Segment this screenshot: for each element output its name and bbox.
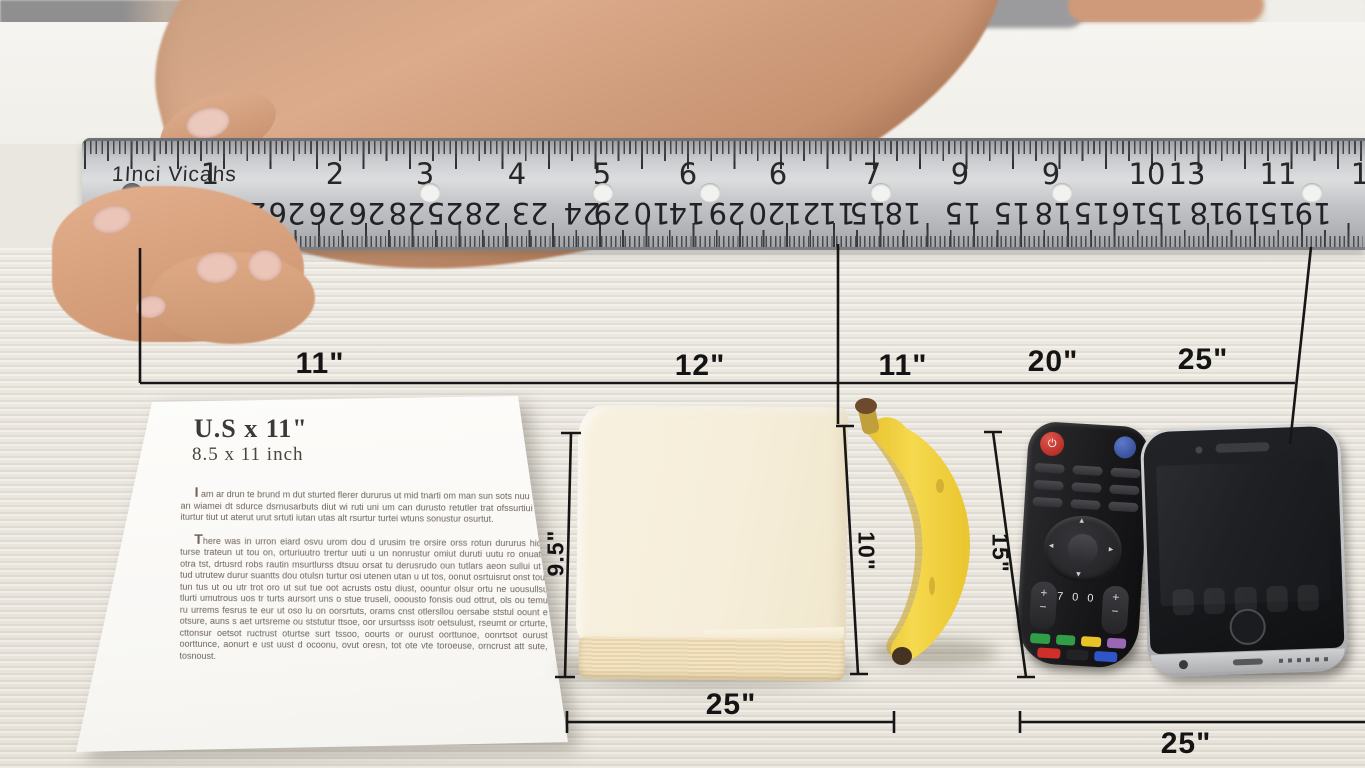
ruler-hole [593, 183, 614, 202]
phone-headphone-jack [1179, 660, 1188, 669]
ruler-hole [1052, 183, 1073, 202]
dpad-ok-button [1067, 533, 1099, 565]
remote-colored-button [1037, 647, 1060, 658]
remote-dpad: ▴ ▾ ◂ ▸ [1042, 514, 1124, 585]
finger-nail [248, 250, 282, 281]
banana-tip [892, 647, 912, 665]
dpad-left-icon: ◂ [1049, 540, 1054, 551]
remote-source-button [1113, 436, 1136, 459]
remote-colored-button [1094, 651, 1117, 662]
book-cover [576, 405, 848, 646]
remote-colored-button [1030, 633, 1050, 644]
remote-number-keys: 700 [1054, 590, 1105, 605]
remote-button-grid [1032, 463, 1141, 515]
remote-volume-rocker: + − [1029, 581, 1058, 630]
phone-earpiece [1215, 442, 1269, 453]
remote-colored-button [1055, 635, 1075, 646]
banana [820, 396, 1020, 686]
dpad-up-icon: ▴ [1079, 515, 1084, 526]
remote-colored-button [1106, 638, 1126, 649]
book [576, 405, 849, 684]
remote-colored-buttons-row2 [1037, 647, 1117, 662]
ruler-hole [420, 183, 441, 202]
smartphone [1140, 423, 1349, 678]
remote-colored-buttons-row1 [1030, 633, 1126, 649]
book-page-edges [579, 637, 845, 682]
remote-colored-button [1081, 636, 1101, 647]
phone-speaker-holes [1279, 657, 1331, 663]
ruler-hole [700, 183, 721, 202]
phone-home-button [1229, 608, 1266, 645]
tv-remote: ⏻ ▴ ▾ ◂ ▸ + − + − 700 [1015, 421, 1152, 670]
remote-colored-button [1066, 649, 1089, 660]
dpad-right-icon: ▸ [1108, 544, 1113, 555]
scene: 1Inci Vicahs 12345667991013111 229262626… [0, 0, 1365, 768]
person-second-arm [1068, 0, 1264, 22]
ruler-hole [871, 183, 892, 202]
banana-stem-cap [855, 398, 877, 414]
phone-charging-port [1233, 658, 1263, 665]
phone-front-camera [1195, 446, 1202, 453]
remote-power-button: ⏻ [1039, 431, 1064, 456]
ruler-hole [1302, 183, 1323, 202]
phone-face [1143, 426, 1345, 655]
dpad-down-icon: ▾ [1076, 569, 1081, 580]
